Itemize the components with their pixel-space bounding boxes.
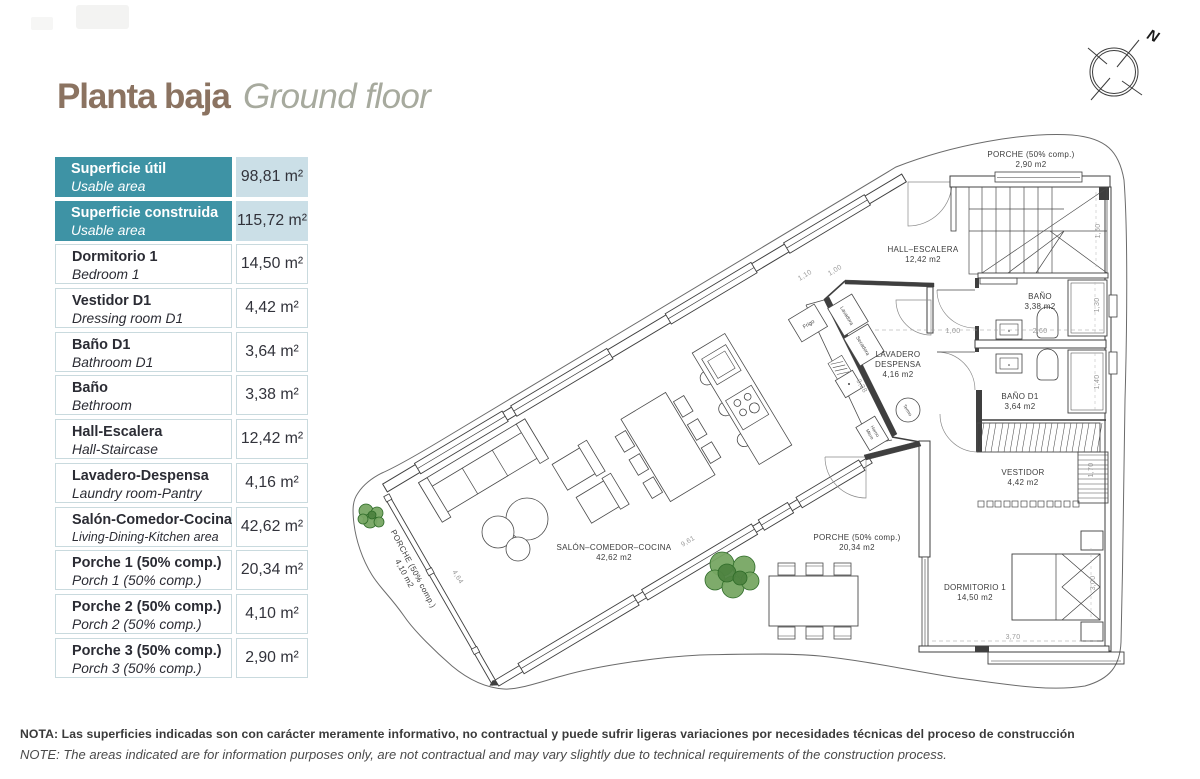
svg-text:3,70: 3,70 xyxy=(1006,634,1021,641)
svg-text:PORCHE (50% comp.)20,34 m2: PORCHE (50% comp.)20,34 m2 xyxy=(813,533,900,552)
svg-text:1,60: 1,60 xyxy=(1095,224,1102,239)
svg-text:HALL–ESCALERA12,42 m2: HALL–ESCALERA12,42 m2 xyxy=(887,245,958,264)
svg-text:3,00: 3,00 xyxy=(1090,576,1097,591)
svg-text:1,00: 1,00 xyxy=(946,328,961,335)
svg-text:1,40: 1,40 xyxy=(1094,375,1101,390)
svg-text:N: N xyxy=(1144,26,1162,46)
svg-text:BAÑO3,38 m2: BAÑO3,38 m2 xyxy=(1024,292,1055,311)
svg-text:9,61: 9,61 xyxy=(680,535,696,549)
svg-text:2,60: 2,60 xyxy=(1033,328,1048,335)
svg-text:PORCHE (50% comp.)2,90 m2: PORCHE (50% comp.)2,90 m2 xyxy=(987,150,1074,169)
svg-text:DORMITORIO 114,50 m2: DORMITORIO 114,50 m2 xyxy=(944,583,1006,602)
svg-text:VESTIDOR4,42 m2: VESTIDOR4,42 m2 xyxy=(1001,468,1044,487)
svg-text:1,70: 1,70 xyxy=(1088,463,1095,478)
svg-text:1,00: 1,00 xyxy=(827,264,843,278)
svg-text:SALÓN–COMEDOR–COCINA42,62 m2: SALÓN–COMEDOR–COCINA42,62 m2 xyxy=(557,543,672,562)
svg-text:BAÑO D13,64 m2: BAÑO D13,64 m2 xyxy=(1001,392,1038,411)
svg-text:4,64: 4,64 xyxy=(450,569,464,585)
svg-text:1,30: 1,30 xyxy=(1094,298,1101,313)
svg-text:LAVADERODESPENSA4,16 m2: LAVADERODESPENSA4,16 m2 xyxy=(875,350,921,379)
svg-text:1,10: 1,10 xyxy=(797,269,813,283)
